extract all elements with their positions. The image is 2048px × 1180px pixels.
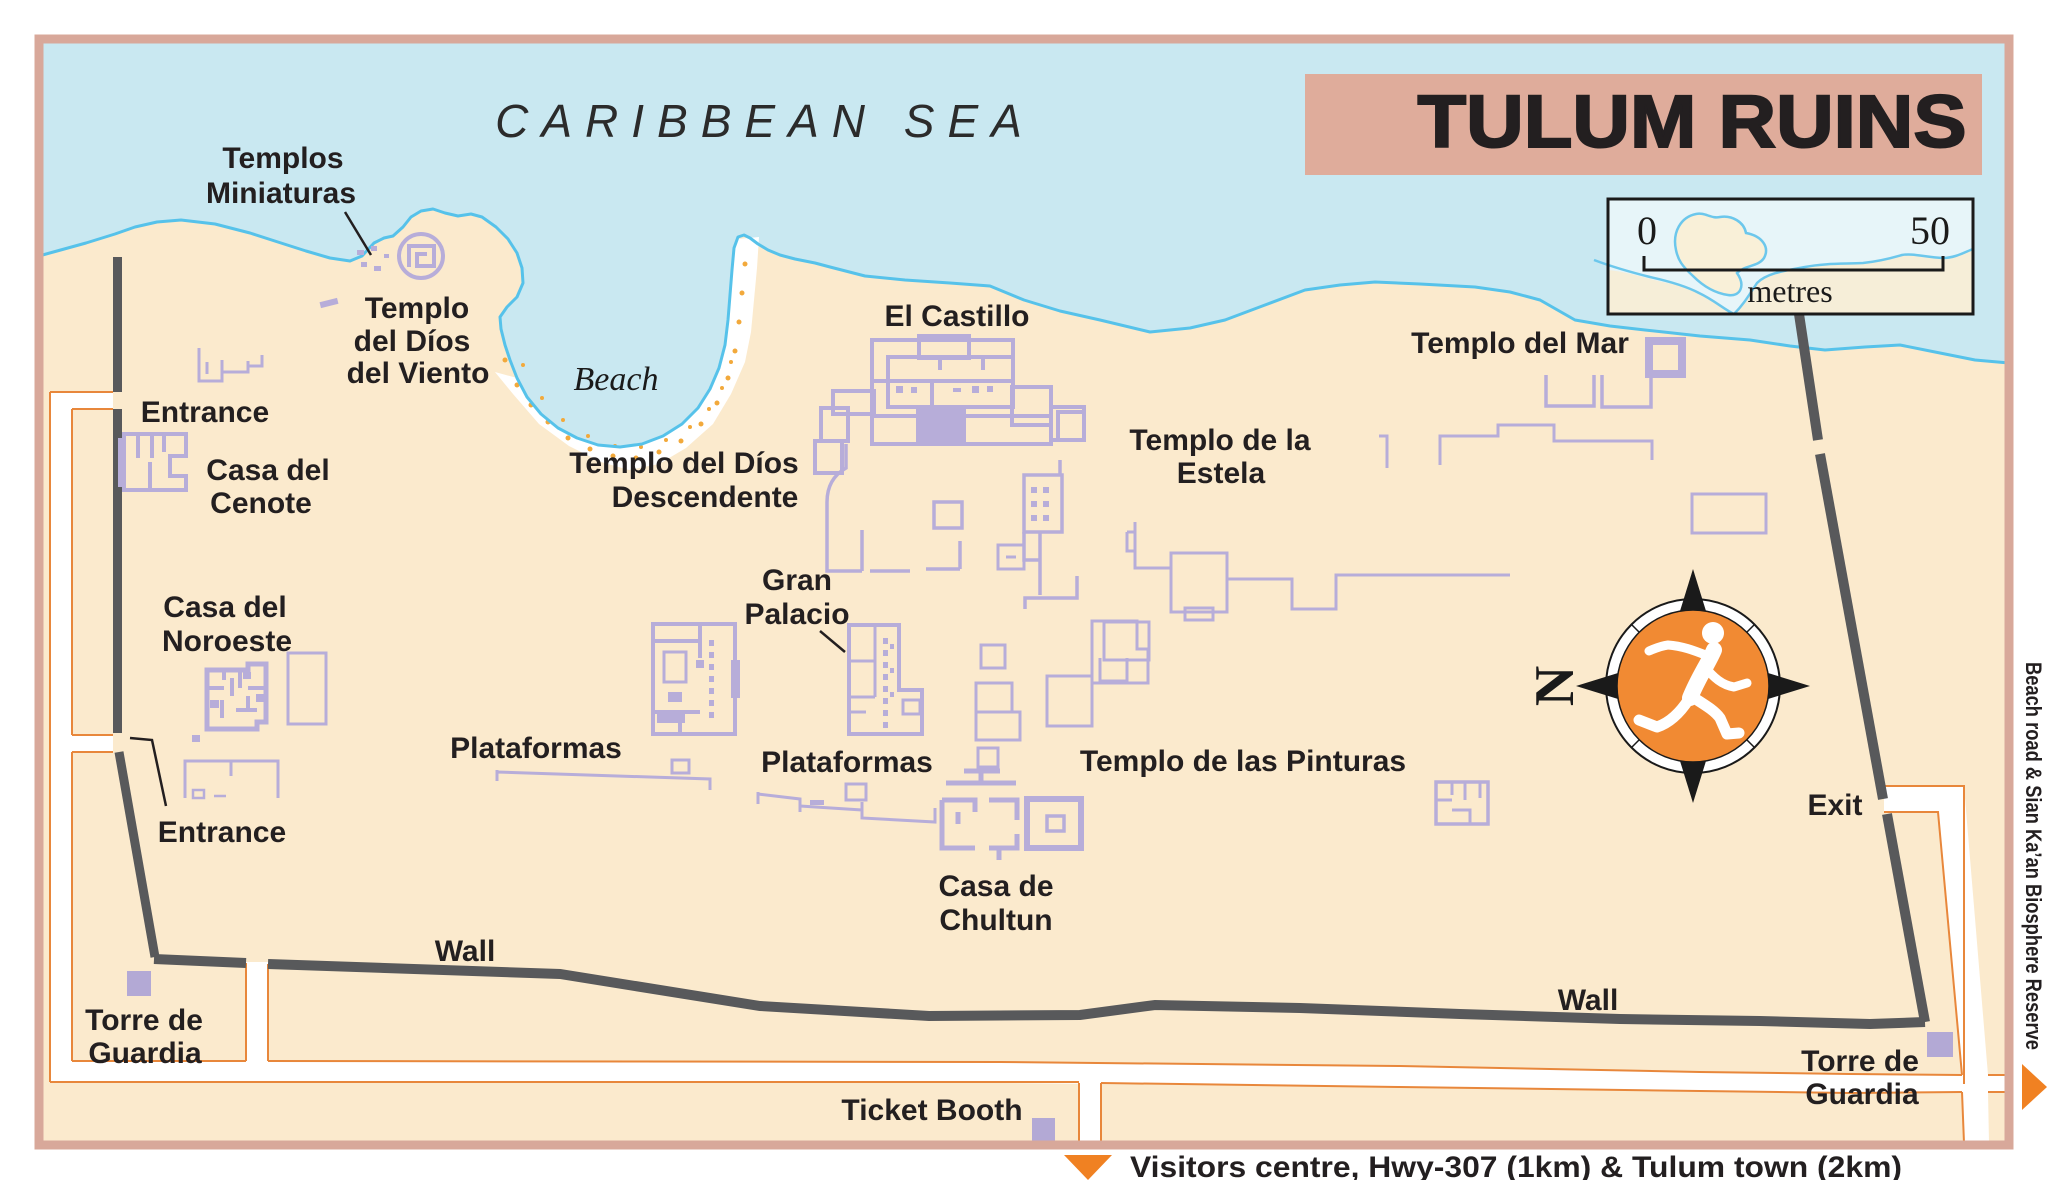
svg-text:Plataformas: Plataformas <box>450 732 622 765</box>
svg-text:Beach road & Sian Ka’an Biosph: Beach road & Sian Ka’an Biosphere Reserv… <box>2021 662 2046 1050</box>
svg-text:Wall: Wall <box>435 935 496 968</box>
svg-text:Templo del Mar: Templo del Mar <box>1411 327 1629 360</box>
svg-text:Ticket Booth: Ticket Booth <box>841 1094 1022 1127</box>
svg-text:Templo de las Pinturas: Templo de las Pinturas <box>1080 745 1406 778</box>
svg-text:Visitors centre, Hwy-307 (1km): Visitors centre, Hwy-307 (1km) & Tulum t… <box>1130 1151 1902 1180</box>
svg-text:Casa deChultun: Casa deChultun <box>938 870 1053 937</box>
svg-text:Entrance: Entrance <box>158 816 286 849</box>
svg-text:TULUM RUINS: TULUM RUINS <box>1418 80 1967 163</box>
svg-text:Entrance: Entrance <box>141 396 269 429</box>
svg-text:CARIBBEAN SEA: CARIBBEAN SEA <box>495 95 1035 147</box>
svg-text:Casa delCenote: Casa delCenote <box>206 454 329 520</box>
svg-text:N: N <box>1524 666 1586 706</box>
svg-text:Wall: Wall <box>1558 984 1619 1017</box>
svg-text:Torre deGuardia: Torre deGuardia <box>1801 1045 1919 1111</box>
svg-text:El Castillo: El Castillo <box>884 300 1029 333</box>
svg-text:Templodel Díosdel Viento: Templodel Díosdel Viento <box>347 292 490 390</box>
svg-text:Plataformas: Plataformas <box>761 746 933 779</box>
svg-text:50: 50 <box>1910 208 1950 253</box>
svg-text:Casa delNoroeste: Casa delNoroeste <box>162 591 292 658</box>
svg-text:0: 0 <box>1637 208 1657 253</box>
svg-text:Beach: Beach <box>574 361 659 398</box>
svg-text:Exit: Exit <box>1807 789 1862 822</box>
svg-text:Torre deGuardia: Torre deGuardia <box>85 1004 203 1070</box>
svg-text:metres: metres <box>1747 273 1832 309</box>
